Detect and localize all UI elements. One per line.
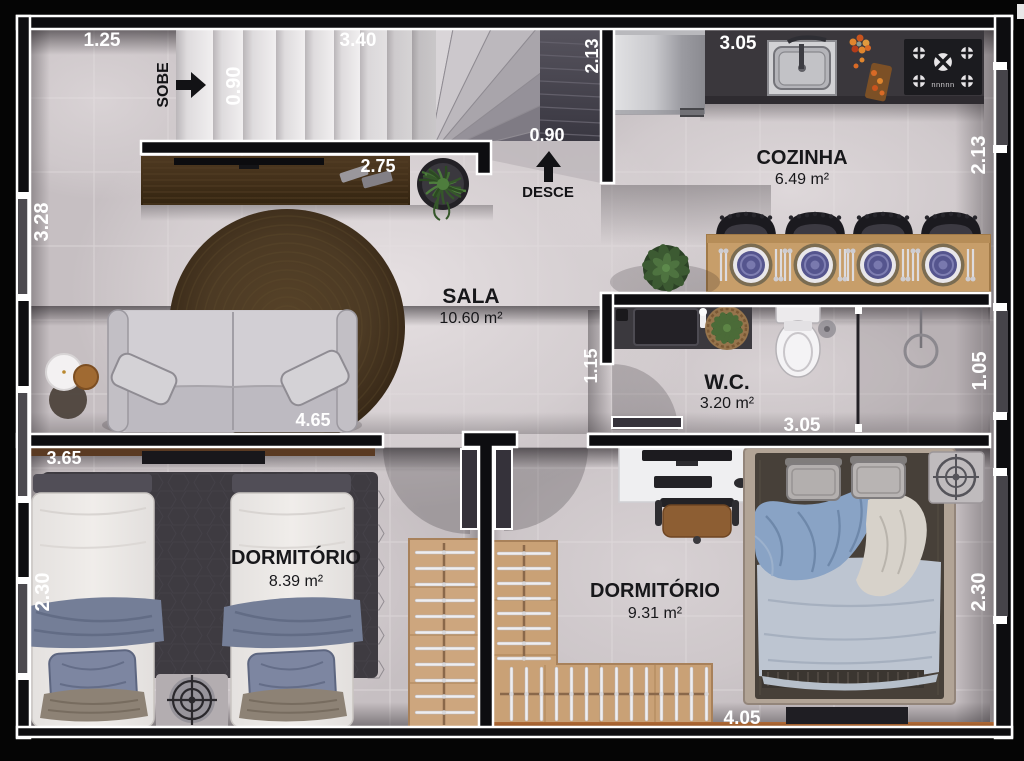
svg-text:1.15: 1.15 xyxy=(581,348,601,383)
svg-text:2.13: 2.13 xyxy=(968,136,990,175)
svg-text:SALA: SALA xyxy=(442,285,499,308)
svg-text:nnnnn: nnnnn xyxy=(931,80,954,89)
svg-text:6.49 m²: 6.49 m² xyxy=(775,171,830,188)
svg-text:4.65: 4.65 xyxy=(295,410,330,430)
svg-text:2.75: 2.75 xyxy=(360,156,395,176)
svg-text:3.05: 3.05 xyxy=(720,33,757,54)
svg-text:SOBE: SOBE xyxy=(155,62,172,108)
svg-text:DORMITÓRIO: DORMITÓRIO xyxy=(590,578,720,602)
svg-text:2.13: 2.13 xyxy=(582,38,602,73)
svg-text:COZINHA: COZINHA xyxy=(756,147,847,169)
svg-text:DORMITÓRIO: DORMITÓRIO xyxy=(231,545,361,569)
svg-text:3.28: 3.28 xyxy=(31,203,53,242)
svg-text:3.65: 3.65 xyxy=(46,448,81,468)
svg-text:2.30: 2.30 xyxy=(32,573,54,612)
svg-text:0.90: 0.90 xyxy=(223,67,245,106)
svg-text:W.C.: W.C. xyxy=(704,371,750,394)
svg-text:3.20 m²: 3.20 m² xyxy=(700,395,755,412)
svg-text:1.25: 1.25 xyxy=(84,30,121,51)
svg-text:8.39 m²: 8.39 m² xyxy=(269,573,324,590)
svg-text:9.31 m²: 9.31 m² xyxy=(628,605,683,622)
svg-text:10.60 m²: 10.60 m² xyxy=(439,310,503,327)
svg-text:1.05: 1.05 xyxy=(969,352,991,391)
svg-text:2.30: 2.30 xyxy=(968,573,990,612)
svg-text:3.40: 3.40 xyxy=(340,30,377,51)
svg-text:DESCE: DESCE xyxy=(522,184,574,201)
svg-text:0.90: 0.90 xyxy=(529,125,564,145)
